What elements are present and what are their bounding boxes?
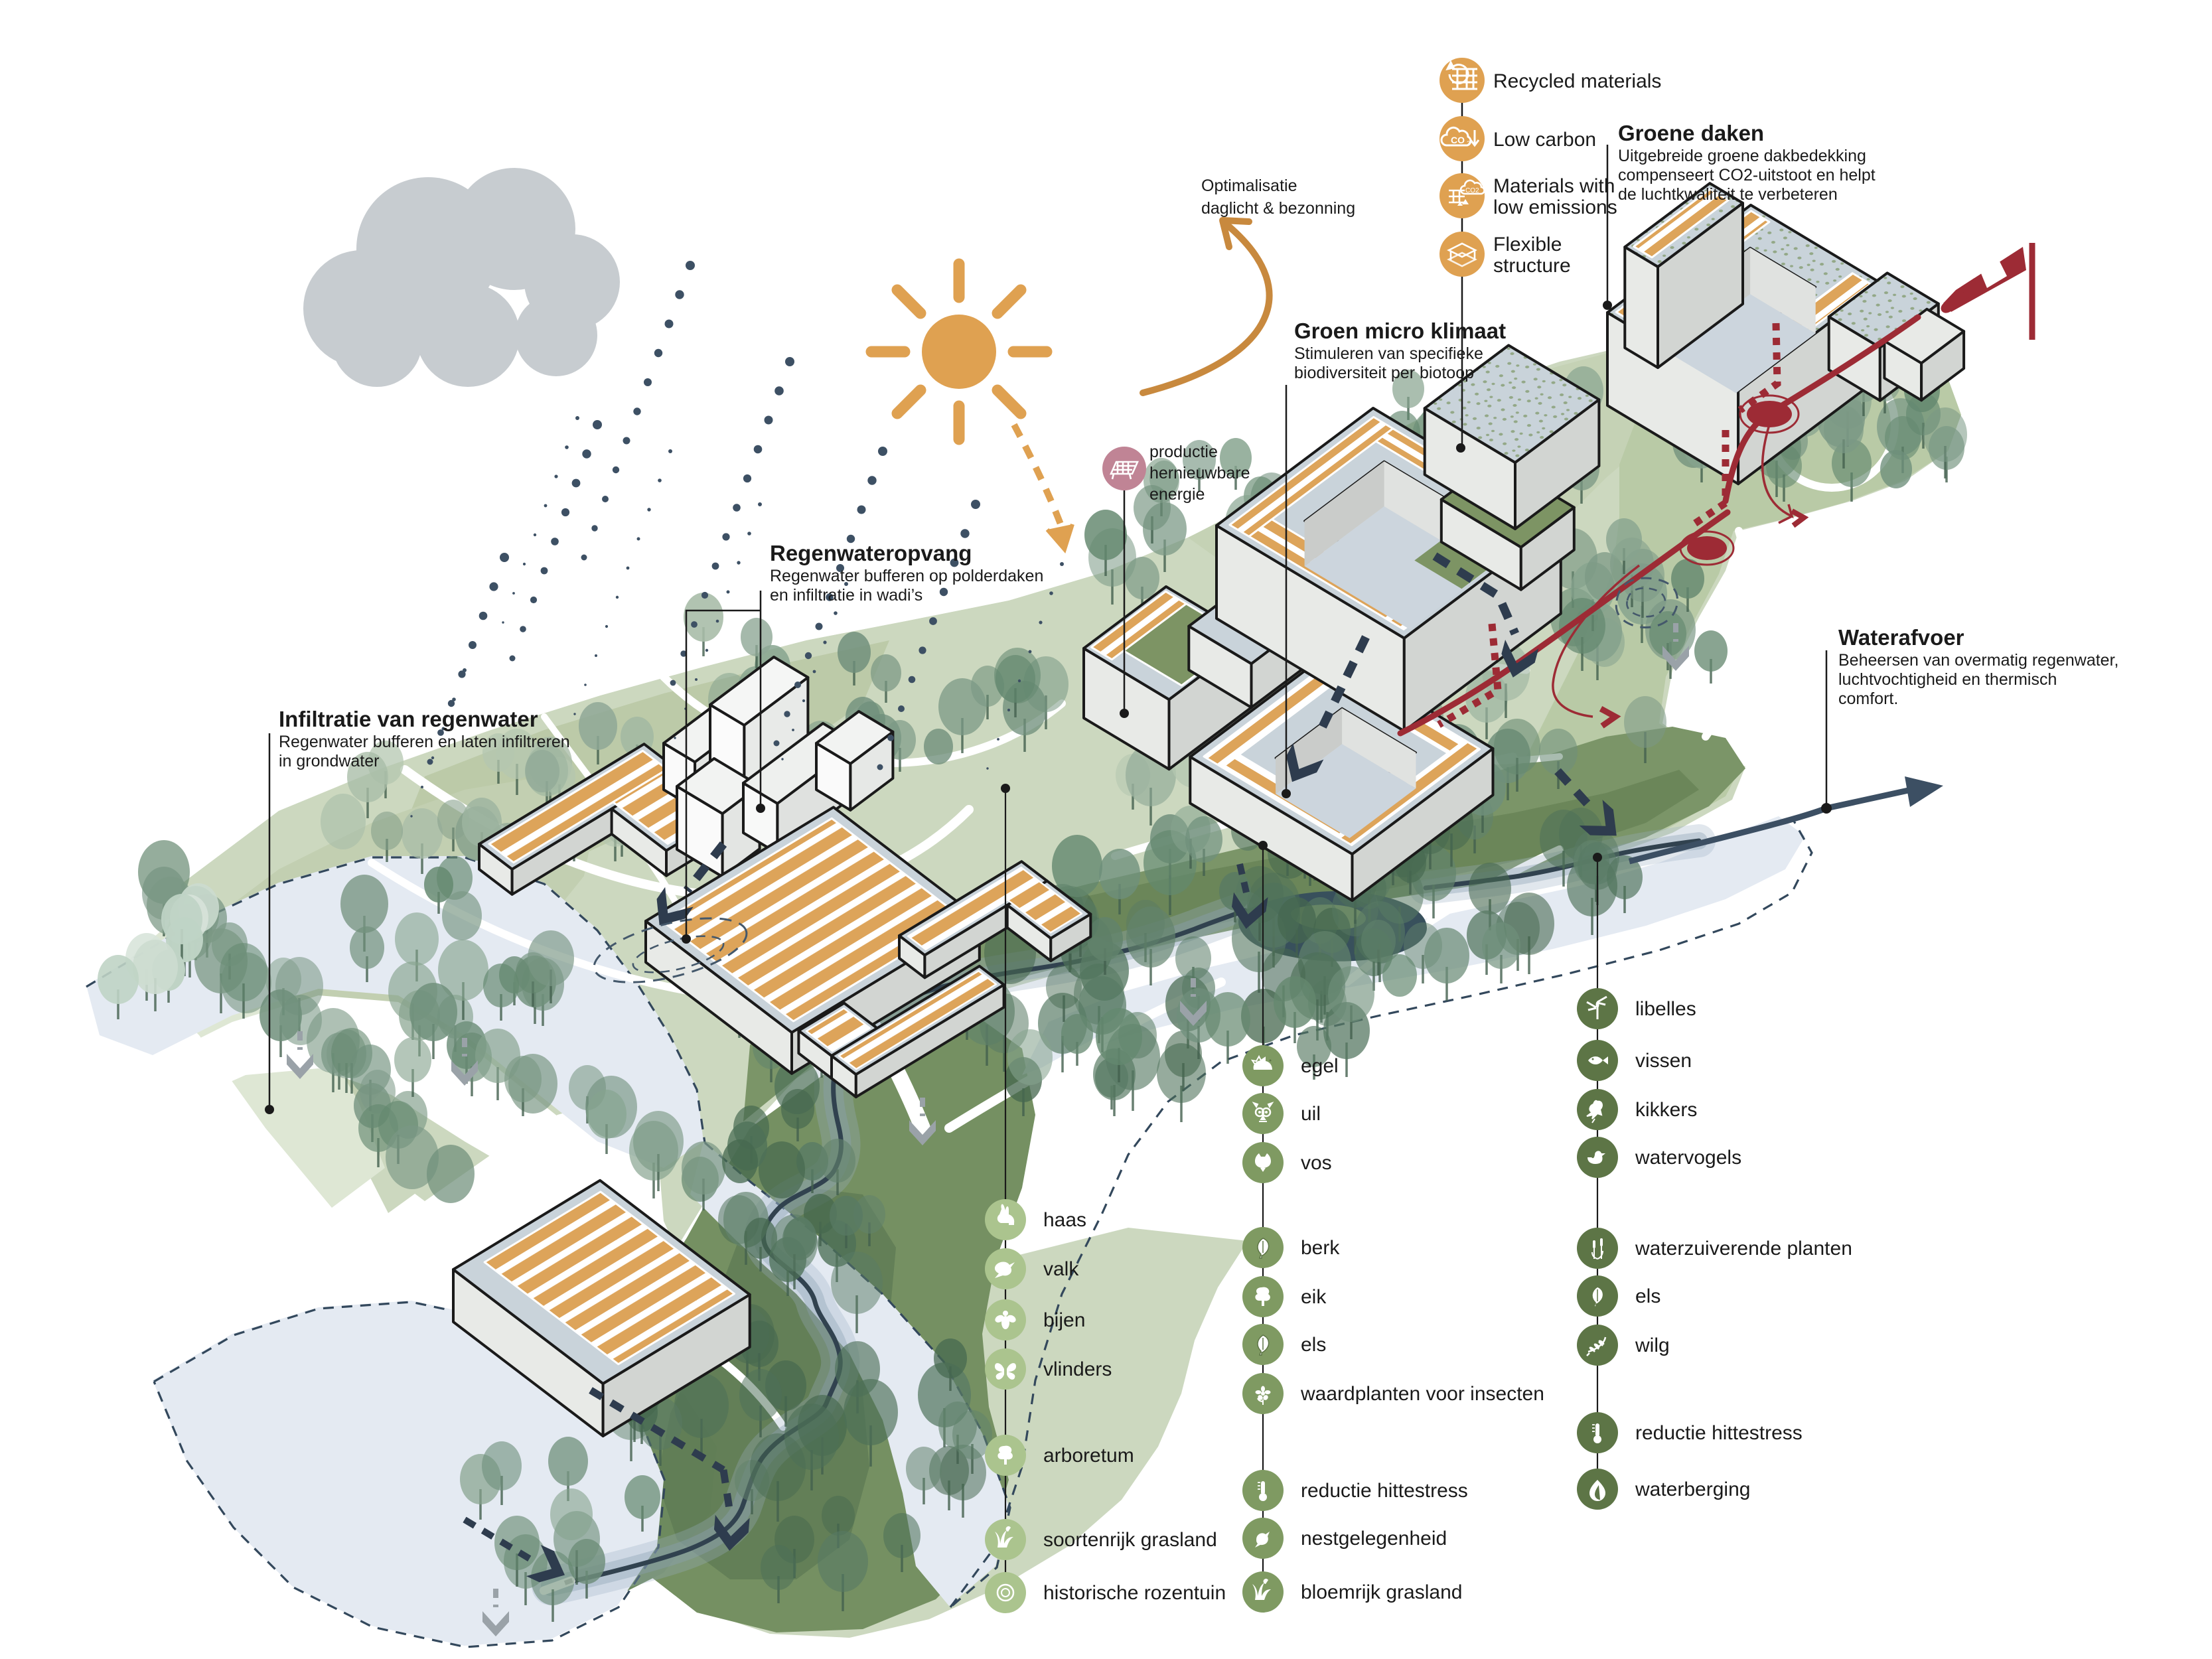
svg-text:energie: energie <box>1149 485 1205 504</box>
svg-text:libelles: libelles <box>1635 998 1696 1020</box>
svg-text:waterberging: waterberging <box>1635 1479 1750 1500</box>
svg-text:uil: uil <box>1301 1103 1321 1125</box>
svg-text:vissen: vissen <box>1635 1050 1692 1072</box>
svg-text:compenseert CO2-uitstoot en he: compenseert CO2-uitstoot en helpt <box>1618 166 1876 184</box>
svg-text:structure: structure <box>1493 255 1571 277</box>
svg-text:Waterafvoer: Waterafvoer <box>1838 625 1964 650</box>
svg-text:Groene daken: Groene daken <box>1618 121 1764 145</box>
svg-text:en infiltratie in wadi’s: en infiltratie in wadi’s <box>770 586 922 605</box>
svg-text:biodiversiteit per biotoop: biodiversiteit per biotoop <box>1294 364 1474 382</box>
svg-text:low emissions: low emissions <box>1493 196 1617 218</box>
svg-text:waterzuiverende planten: waterzuiverende planten <box>1635 1238 1852 1260</box>
svg-text:luchtvochtigheid en thermisch: luchtvochtigheid en thermisch <box>1838 670 2057 689</box>
svg-text:historische rozentuin: historische rozentuin <box>1043 1582 1226 1604</box>
svg-text:Materials with: Materials with <box>1493 175 1615 197</box>
svg-text:Regenwateropvang: Regenwateropvang <box>770 541 972 565</box>
svg-text:soortenrijk grasland: soortenrijk grasland <box>1043 1529 1217 1551</box>
svg-text:vos: vos <box>1301 1152 1332 1174</box>
svg-text:comfort.: comfort. <box>1838 689 1898 708</box>
svg-text:kikkers: kikkers <box>1635 1099 1697 1121</box>
svg-text:watervogels: watervogels <box>1635 1147 1741 1169</box>
svg-text:Flexible: Flexible <box>1493 234 1562 255</box>
svg-text:Groen micro klimaat: Groen micro klimaat <box>1294 319 1506 343</box>
svg-text:Beheersen van overmatig regenw: Beheersen van overmatig regenwater, <box>1838 651 2118 670</box>
svg-text:Low carbon: Low carbon <box>1493 129 1596 151</box>
svg-text:arboretum: arboretum <box>1043 1445 1134 1467</box>
svg-text:waardplanten voor insecten: waardplanten voor insecten <box>1300 1383 1544 1405</box>
svg-text:CO: CO <box>1451 135 1465 145</box>
svg-text:daglicht & bezonning: daglicht & bezonning <box>1201 199 1355 218</box>
svg-text:egel: egel <box>1301 1055 1339 1077</box>
svg-text:2: 2 <box>1467 140 1470 147</box>
svg-text:Stimuleren van specifieke: Stimuleren van specifieke <box>1294 344 1483 363</box>
svg-text:valk: valk <box>1043 1258 1079 1280</box>
svg-text:els: els <box>1635 1285 1660 1307</box>
svg-text:wilg: wilg <box>1635 1334 1670 1356</box>
svg-text:Uitgebreide groene dakbedekkin: Uitgebreide groene dakbedekking <box>1618 147 1866 165</box>
svg-text:in grondwater: in grondwater <box>279 752 379 770</box>
svg-text:productie: productie <box>1149 443 1218 461</box>
svg-text:berk: berk <box>1301 1237 1340 1259</box>
svg-text:bijen: bijen <box>1043 1309 1085 1331</box>
svg-text:els: els <box>1301 1334 1326 1356</box>
svg-text:reductie hittestress: reductie hittestress <box>1635 1422 1803 1444</box>
svg-text:de luchtkwaliteit te verbetere: de luchtkwaliteit te verbeteren <box>1618 185 1838 204</box>
svg-text:Regenwater bufferen op polderd: Regenwater bufferen op polderdaken <box>770 567 1043 585</box>
svg-text:CO2: CO2 <box>1465 187 1479 194</box>
svg-text:Optimalisatie: Optimalisatie <box>1201 177 1297 195</box>
svg-text:bloemrijk grasland: bloemrijk grasland <box>1301 1581 1462 1603</box>
svg-text:reductie hittestress: reductie hittestress <box>1301 1480 1468 1502</box>
svg-text:Infiltratie van regenwater: Infiltratie van regenwater <box>279 707 538 731</box>
svg-text:hernieuwbare: hernieuwbare <box>1149 464 1250 482</box>
svg-text:nestgelegenheid: nestgelegenheid <box>1301 1528 1447 1550</box>
svg-text:Recycled materials: Recycled materials <box>1493 70 1661 92</box>
svg-text:eik: eik <box>1301 1286 1327 1308</box>
svg-text:haas: haas <box>1043 1209 1086 1231</box>
svg-text:Regenwater bufferen en laten i: Regenwater bufferen en laten infiltreren <box>279 733 570 751</box>
svg-text:vlinders: vlinders <box>1043 1358 1112 1380</box>
